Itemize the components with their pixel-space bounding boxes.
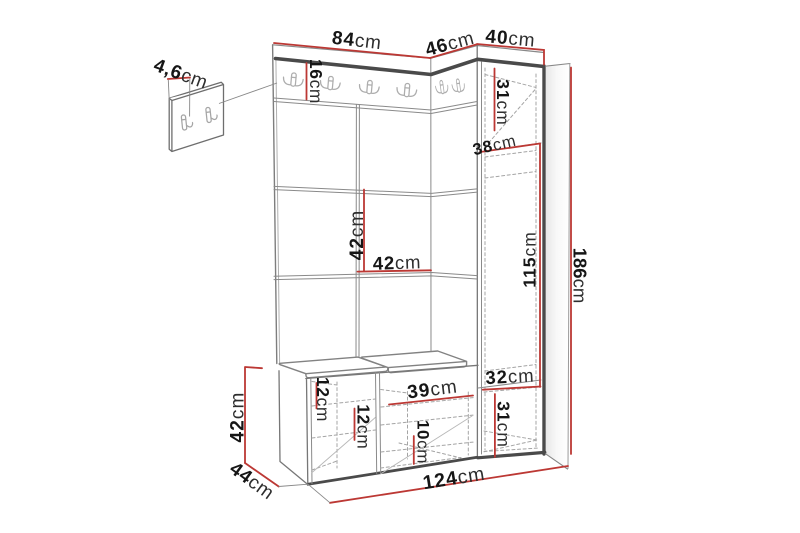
svg-text:186cm: 186cm: [570, 248, 591, 304]
svg-text:16cm: 16cm: [306, 59, 326, 104]
svg-text:42cm: 42cm: [347, 210, 368, 260]
svg-text:12cm: 12cm: [354, 404, 374, 449]
svg-text:10cm: 10cm: [414, 420, 433, 464]
svg-text:12cm: 12cm: [313, 377, 333, 422]
svg-text:42cm: 42cm: [227, 392, 248, 443]
svg-text:42cm: 42cm: [372, 251, 421, 274]
svg-text:40cm: 40cm: [485, 26, 537, 51]
svg-text:115cm: 115cm: [520, 231, 540, 288]
svg-text:31cm: 31cm: [494, 401, 514, 448]
svg-text:31cm: 31cm: [493, 79, 513, 126]
svg-text:32cm: 32cm: [485, 365, 535, 389]
